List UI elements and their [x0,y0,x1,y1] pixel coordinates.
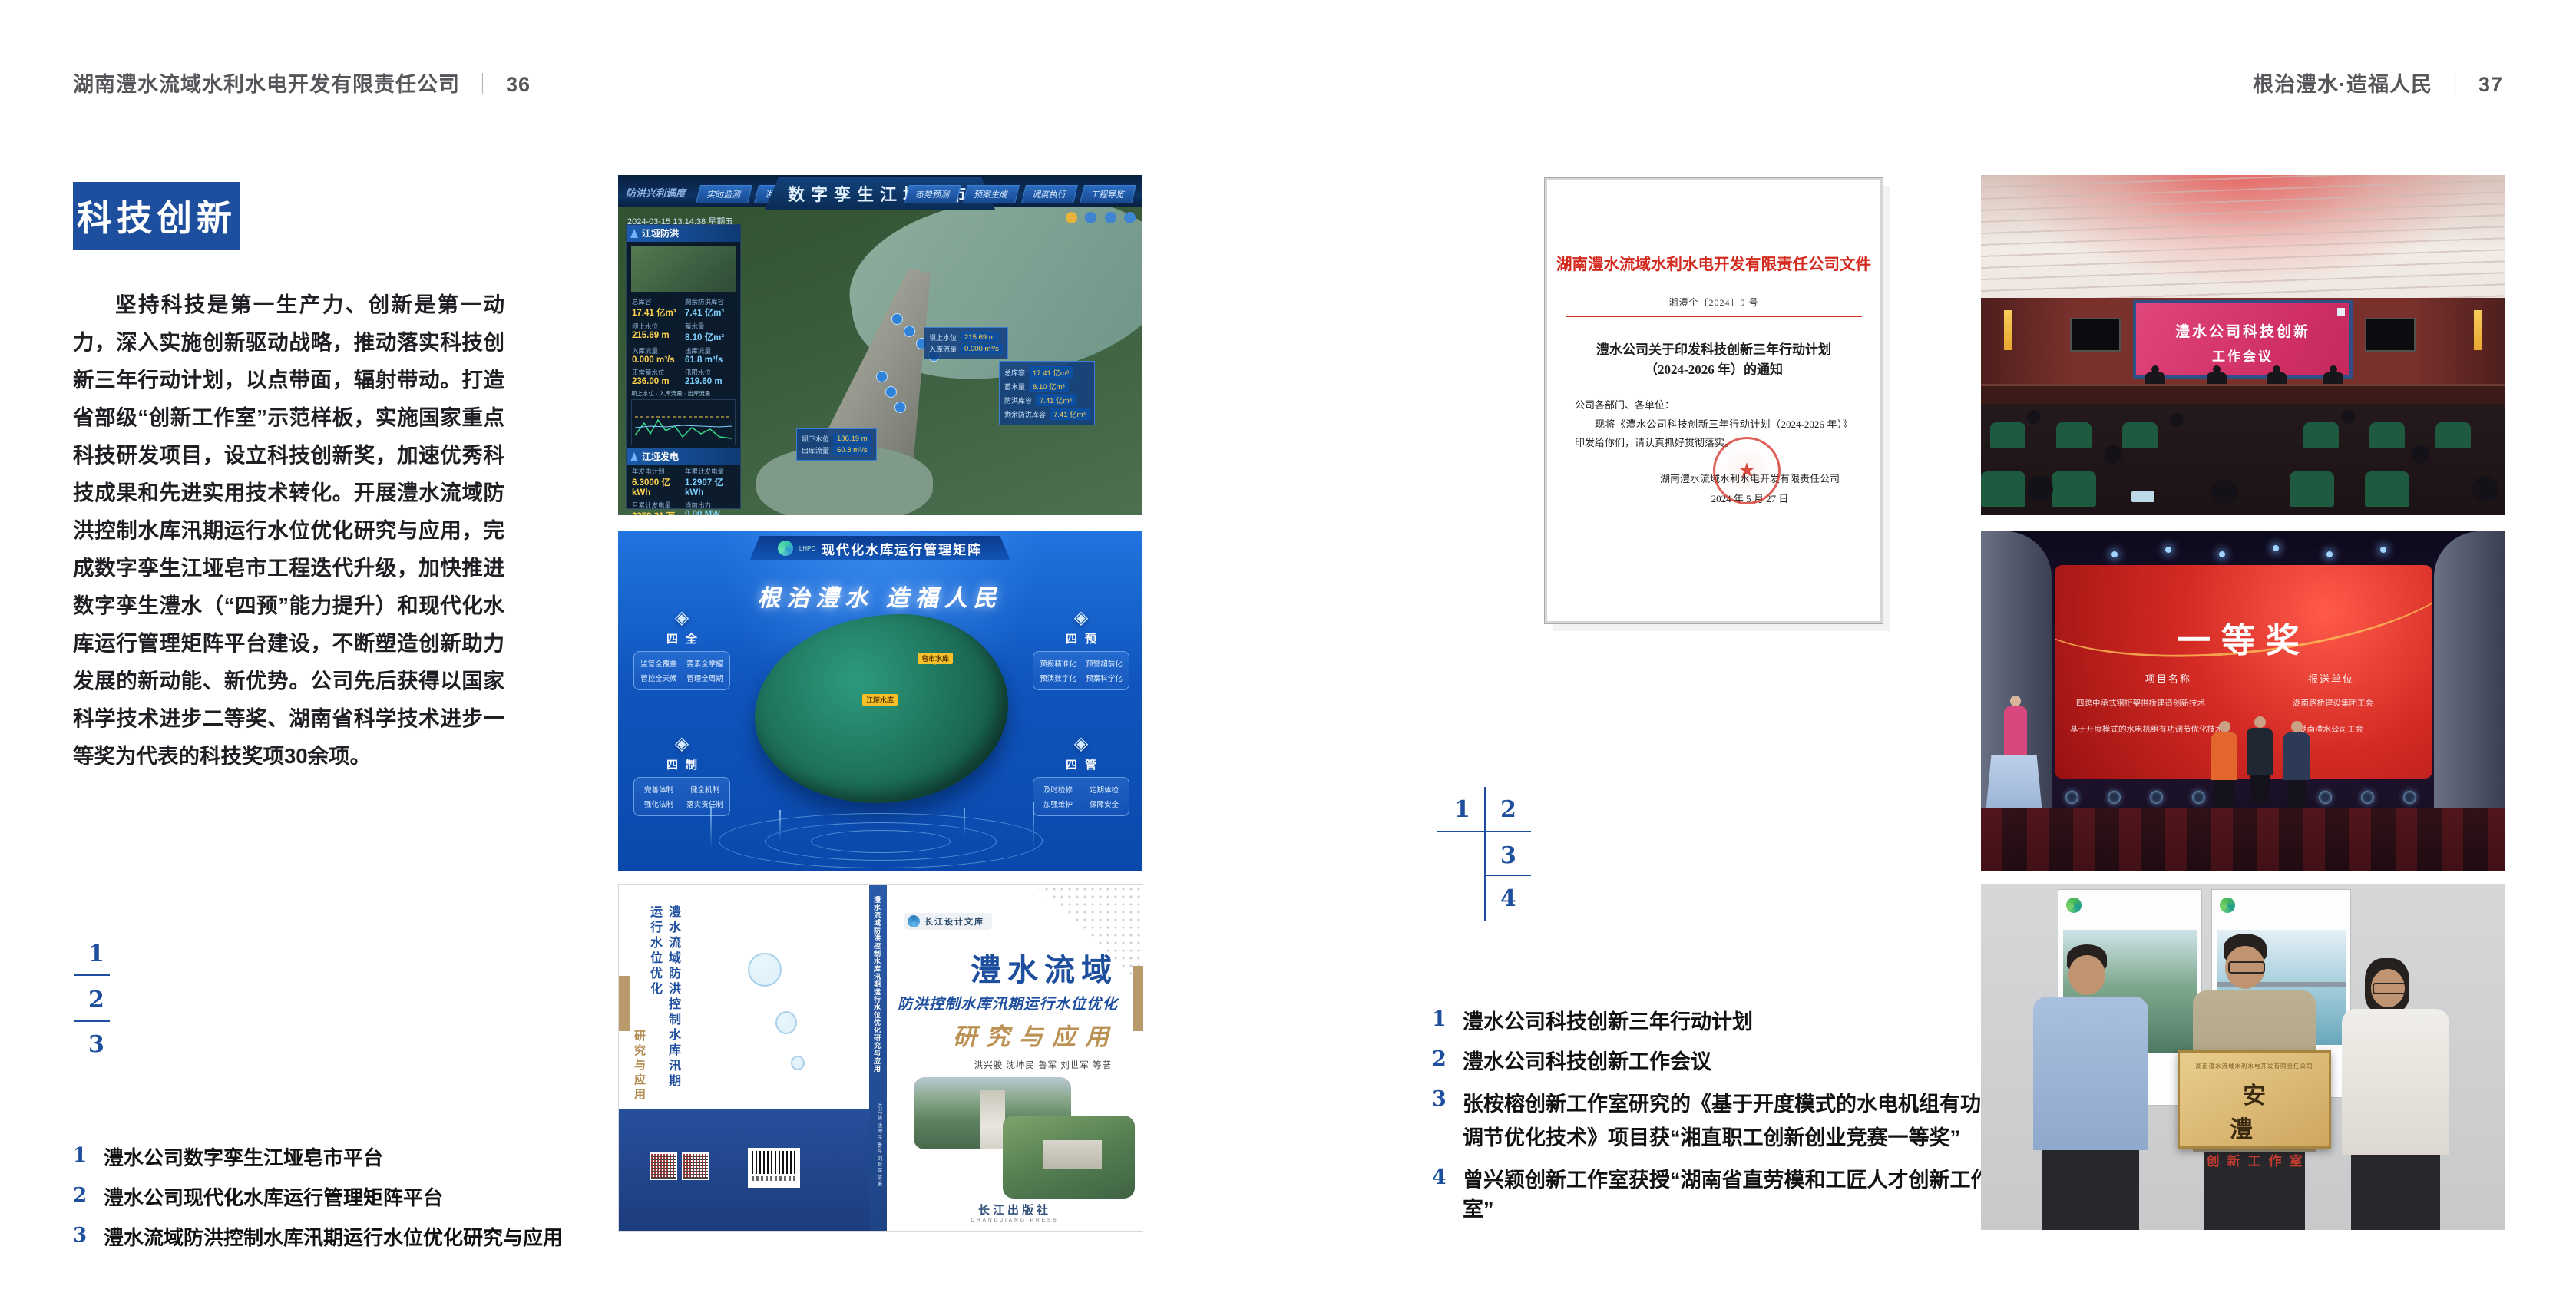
panel-items: 完善体制健全机制 强化法制落实责任制 [633,777,730,816]
glasses-icon [2228,961,2265,974]
light-pillar [710,806,712,848]
caption-row: 2 澧水公司现代化水库运行管理矩阵平台 [73,1184,580,1212]
wall-tv-screen [2365,318,2416,352]
left-header-separator: ｜ [472,73,494,96]
figure-index-2: 2 [88,987,104,1013]
dashboard-tabs-right: 态势预测 预案生成 调度执行 工程导览 [907,185,1134,203]
ripple-ring [811,830,951,853]
lhpc-logo-icon [778,541,793,556]
stage-light [2380,547,2386,553]
chair-back [2122,422,2158,448]
column-unit: 报送单位 [2308,671,2354,686]
section-title: 科技创新 [77,190,236,241]
user-icon [1066,212,1077,223]
figure-digital-twin-dashboard: 防洪兴利调度 实时监测 洪水预报 防洪预警 数字孪生江垭皂市 态势预测 预案生成… [618,175,1142,515]
stage-fixture [2192,791,2205,804]
caption-number: 2 [73,1184,104,1212]
left-page-number: 36 [506,73,531,96]
stat-cell: 坝上水位215.69 m [630,320,683,345]
tooltip-row: 坝上水位215.69 m [929,332,1003,342]
plaque-sub-text: 创新工作室 [2180,1150,2329,1169]
water-droplet [748,953,782,987]
official-seal: ★ [1713,437,1781,504]
page-spread: { "colors": {"accent_blue": "#1e4f9e", "… [0,0,2576,1306]
capacity-tooltip: 总库容17.41 亿m³ 蓄水量8.10 亿m³ 防洪库容7.41 亿m³ 剩余… [999,361,1095,425]
audience-head [2342,410,2356,424]
document-body: 现将《澧水公司科技创新三年行动计划（2024-2026 年）》印发给你们，请认真… [1575,415,1853,452]
caption-number: 1 [1432,1007,1463,1037]
panel-siquan: ◈ 四全 监管全覆盖要素全掌握 管控全天候管理全周期 [633,607,730,690]
qr-code [682,1152,709,1180]
index-divider [74,1020,110,1022]
caption-text: 澧水流域防洪控制水库汛期运行水位优化研究与应用 [104,1224,563,1251]
series-name: 长江设计文库 [924,915,984,927]
water-droplet [775,1011,797,1034]
chair-back [1990,422,2025,448]
seal-star-icon: ★ [1738,459,1755,482]
index-divider [1437,831,1531,832]
caption-row: 1 澧水公司科技创新三年行动计划 [1432,1007,2000,1037]
tab-plan-generation: 预案生成 [963,185,1020,203]
stage-light [2219,551,2225,557]
photo-studio-group: 湖南澧水流域水利水电开发有限责任公司 安 澧 创新工作室 [1981,884,2505,1230]
caption-number: 2 [1432,1047,1463,1076]
downstream-tooltip: 坝下水位186.19 m 出库流量60.8 m³/s [796,428,877,461]
audience-head [2472,476,2498,502]
document-salutation: 公司各部门、各单位： [1575,397,1675,412]
chair-back [2369,422,2405,448]
tab-realtime-monitoring: 实时监测 [696,185,752,203]
publisher-name: 长江出版社 [887,1202,1143,1218]
lhpc-logo-icon [2220,898,2235,913]
light-pillar [1033,802,1034,848]
winner-figure-navy [2283,732,2310,780]
audience-head [2104,445,2122,464]
photo-award-ceremony: 一等奖 项目名称 报送单位 四跨中承式钢桁架拱桥建造创新技术 湖南路桥建设集团工… [1981,531,2505,871]
left-header-company: 湖南澧水流域水利水电开发有限责任公司 [73,73,460,96]
layers-icon [1085,212,1096,223]
figure-index-4: 4 [1500,885,1516,912]
screen-content: 澧水公司科技创新 工作会议 [2136,303,2349,375]
dashboard-icon-row [1061,212,1136,227]
barcode [748,1148,800,1188]
stage-fixture [2361,791,2374,804]
right-page-header: 根治澧水·造福人民｜37 [2253,68,2503,98]
audience-head [2411,445,2429,464]
caption-number: 4 [1432,1165,1463,1224]
caption-row: 1 澧水公司数字孪生江垭皂市平台 [73,1144,580,1172]
stat-cell: 总库容17.41 亿m³ [630,296,683,320]
tooltip-row: 总库容17.41 亿m³ [1004,366,1090,379]
stage-light [2165,547,2171,553]
panel-siguan: ◈ 四管 及时检修定期体检 加强维护保障安全 [1033,732,1129,816]
tooltip-row: 坝下水位186.19 m [802,434,871,444]
stage-fixture [2065,791,2078,804]
cube-icon: ◈ [633,732,730,755]
stage-fixture [2150,791,2163,804]
award-row-unit: 湖南澧水公司工会 [2299,723,2363,735]
index-divider [1484,875,1531,876]
caption-number: 3 [73,1224,104,1251]
screen-title-line2: 工作会议 [2136,341,2349,365]
stat-cell: 蓄水量8.10 亿m³ [683,320,736,345]
spine-authors: 洪兴骏 沈坤民 鲁军 刘世军 等著 [875,1103,882,1187]
flood-panel: 江垭防洪 总库容17.41 亿m³ 剩余防洪库容7.41 亿m³ 坝上水位215… [626,224,741,509]
caption-text: 澧水公司数字孪生江垭皂市平台 [104,1144,383,1172]
back-cover-vertical-title: 澧水流域防洪控制水库汛期运行水位优化 [645,905,682,1099]
seated-person [2145,372,2165,384]
person-legs [2351,1155,2440,1230]
right-figure-index: 1 2 3 4 [1436,787,1543,925]
caption-number: 3 [1432,1087,1463,1155]
matrix-title: 现代化水库运行管理矩阵 [822,539,982,558]
photo-innovation-meeting: 澧水公司科技创新 工作会议 [1981,175,2505,515]
water-level-chart [631,399,736,445]
gate-marker-dot [885,386,897,398]
stat-cell: 当前出力0.00 MW [683,499,736,515]
stage-light [2326,551,2333,557]
figure-index-2: 2 [1500,796,1516,823]
tooltip-row: 防洪库容7.41 亿m³ [1004,394,1090,406]
publisher-name-en: CHANGJIANG PRESS [887,1218,1143,1223]
seated-person [2207,372,2227,384]
caption-row: 3 澧水流域防洪控制水库汛期运行水位优化研究与应用 [73,1224,580,1251]
wall-lamp [2004,310,2012,350]
chair-back [2290,471,2334,507]
caption-row: 4 曾兴颖创新工作室获授“湖南省直劳模和工匠人才创新工作室” [1432,1165,2000,1224]
tooltip-row: 出库流量60.8 m³/s [802,445,871,455]
panel-items: 监管全覆盖要素全掌握 管控全天候管理全周期 [633,651,730,690]
stat-cell: 正常蓄水位236.00 m [630,366,683,388]
figure-index-3: 3 [88,1031,104,1058]
figure-index-3: 3 [1500,842,1516,869]
person-head [2068,955,2105,995]
qr-code [650,1152,677,1180]
right-page-number: 37 [2478,73,2503,96]
light-pillar [779,810,781,841]
book-spine: 澧水流域防洪控制水库汛期运行水位优化研究与应用 洪兴骏 沈坤民 鲁军 刘世军 等… [869,885,887,1231]
caption-row: 3 张桉榕创新工作室研究的《基于开度模式的水电机组有功调节优化技术》项目获“湘直… [1432,1087,2000,1155]
gate-marker-dot [891,313,903,325]
stat-cell: 汛限水位219.60 m [683,366,736,388]
cover-dam-photo-2 [1003,1116,1135,1199]
upstream-tooltip: 坝上水位215.69 m 入库流量0.000 m³/s [924,327,1008,359]
gate-marker-dot [894,402,906,413]
audience-head [2027,410,2041,424]
panel-siyu: ◈ 四预 预报精准化预警超前化 预演数字化预案科学化 [1033,607,1129,690]
right-header-separator: ｜ [2445,73,2466,96]
award-row-project: 四跨中承式钢桁架拱桥建造创新技术 [2076,697,2205,709]
light-pillar [964,808,965,837]
audience-head [2170,413,2184,427]
gate-marker-dot [904,326,915,337]
tab-situation-forecast: 态势预测 [904,185,961,203]
seated-person [2267,372,2287,384]
body-paragraph: 坚持科技是第一生产力、创新是第一动力，深入实施创新驱动战略，推动落实科技创新三年… [73,286,504,775]
left-captions: 1 澧水公司数字孪生江垭皂市平台 2 澧水公司现代化水库运行管理矩阵平台 3 澧… [73,1144,580,1264]
winner-figure-orange [2211,732,2237,780]
caption-text: 张桉榕创新工作室研究的《基于开度模式的水电机组有功调节优化技术》项目获“湘直职工… [1463,1087,2000,1155]
document-number: 湘澧企〔2024〕9 号 [1547,296,1880,309]
chair-back [2056,422,2092,448]
book-title-tail: 研究与应用 [953,1017,1118,1052]
caption-text: 曾兴颖创新工作室获授“湖南省直劳模和工匠人才创新工作室” [1463,1165,2000,1224]
dashboard-corner-label: 防洪兴利调度 [626,185,686,200]
section-title-block: 科技创新 [73,182,240,250]
figure-index-1: 1 [88,941,104,967]
award-title: 一等奖 [2055,613,2432,662]
book-title-sub: 防洪控制水库汛期运行水位优化 [898,991,1118,1013]
stat-cell: 剩余防洪库容7.41 亿m³ [683,296,736,320]
power-stats: 年发电计划6.3000 亿kWh 年累计发电量1.2907 亿kWh 月累计发电… [627,465,740,515]
plaque-org-line: 湖南澧水流域水利水电开发有限责任公司 [2180,1062,2329,1070]
index-divider [74,974,110,976]
award-row-project: 基于开度模式的水电机组有功调节优化技术 [2070,723,2224,735]
chair-back [1981,471,2025,507]
publisher-block: 长江出版社 CHANGJIANG PRESS [887,1202,1143,1223]
column-project: 项目名称 [2145,671,2191,686]
press-logo-icon [908,915,920,927]
person-body-white-tee [2342,1009,2449,1155]
person-body-blue-polo [2033,997,2148,1150]
stage-light [2111,551,2118,557]
left-figure-index: 1 2 3 [74,941,121,1079]
plaque-main-text: 安 澧 [2180,1076,2329,1144]
seated-person [2323,372,2343,384]
panel-items: 及时检修定期体检 加强维护保障安全 [1033,777,1129,816]
dam-thumbnail [631,246,736,292]
figure-matrix-platform: LHPC 现代化水库运行管理矩阵 根治澧水 造福人民 皂市水库 江垭水库 ◈ 四… [618,531,1142,871]
led-screen: 一等奖 项目名称 报送单位 四跨中承式钢桁架拱桥建造创新技术 湖南路桥建设集团工… [2055,565,2432,779]
cube-icon: ◈ [1033,607,1129,629]
stage-light [2273,545,2279,551]
stat-cell: 月累计发电量3359.21 万kWh [630,499,683,515]
screen-title-line1: 澧水公司科技创新 [2136,303,2349,341]
figure-book-cover: 澧水流域防洪控制水库汛期运行水位优化 研究与应用 澧水流域防洪控制水库汛期运行水… [618,884,1143,1232]
left-page-header: 湖南澧水流域水利水电开发有限责任公司｜36 [73,68,531,98]
logo-abbr: LHPC [799,545,815,552]
meeting-ceiling [1981,175,2505,298]
cube-icon: ◈ [633,607,730,629]
stat-cell: 年累计发电量1.2907 亿kWh [683,465,736,499]
tooltip-row: 入库流量0.000 m³/s [929,344,1003,354]
caption-number: 1 [73,1144,104,1172]
panel-items: 预报精准化预警超前化 预演数字化预案科学化 [1033,651,1129,690]
person-legs [2042,1150,2139,1230]
back-cover-gold-tab [619,976,630,1031]
chair-back [2365,471,2409,507]
screen-logo-icon [2337,308,2345,316]
wall-lamp [2474,310,2482,350]
tab-project-tour: 工程导览 [1080,185,1136,203]
chart-legend: 坝上水位 · 入库流量 · 出库流量 [627,388,740,399]
glasses-icon [2373,983,2406,994]
document-org-line: 湖南澧水流域水利水电开发有限责任公司文件 [1547,251,1880,274]
audience-head [2027,476,2053,502]
index-divider-vertical [1484,787,1486,921]
spine-title: 澧水流域防洪控制水库汛期运行水位优化研究与应用 [872,896,882,1073]
cube-icon: ◈ [1033,732,1129,755]
right-header-slogan: 根治澧水·造福人民 [2253,73,2432,96]
back-cover-vertical-subtitle: 研究与应用 [631,1030,647,1103]
right-captions: 1 澧水公司科技创新三年行动计划 2 澧水公司科技创新工作会议 3 张桉榕创新工… [1432,1007,2000,1236]
official-document: 湖南澧水流域水利水电开发有限责任公司文件 湘澧企〔2024〕9 号 澧水公司关于… [1545,178,1883,623]
caption-text: 澧水公司科技创新工作会议 [1463,1047,1711,1076]
host-figure [2004,706,2027,762]
series-badge: 长江设计文库 [904,913,992,930]
rostrum-table [1981,384,2505,406]
chair-back [2435,422,2471,448]
chair-back [2052,471,2096,507]
settings-icon [1124,212,1136,223]
matrix-title-bar: LHPC 现代化水库运行管理矩阵 [749,536,1010,560]
front-cover-gold-tab [1133,966,1143,1031]
audience-head [2211,479,2237,505]
document-title-line2: （2024-2026 年）的通知 [1547,359,1880,378]
locate-icon [1105,212,1116,223]
projection-screen: 澧水公司科技创新 工作会议 [2133,300,2353,379]
flood-panel-title: 江垭防洪 [627,225,740,242]
book-title-main: 澧水流域 [971,945,1118,990]
chair-back [2303,422,2339,448]
tooltip-row: 蓄水量8.10 亿m³ [1004,380,1090,392]
gate-marker-dot [876,371,888,382]
water-droplet [791,1056,805,1070]
stat-cell: 年发电计划6.3000 亿kWh [630,465,683,499]
power-panel-title: 江垭发电 [627,448,740,465]
stat-cell: 出库流量61.8 m³/s [683,345,736,366]
tissue-box [2131,491,2154,502]
map-marker-jiangya: 江垭水库 [862,694,898,706]
document-red-rule [1566,316,1862,317]
award-row-unit: 湖南路桥建设集团工会 [2293,697,2373,709]
stat-cell: 入库流量0.000 m³/s [630,345,683,366]
flood-stats: 总库容17.41 亿m³ 剩余防洪库容7.41 亿m³ 坝上水位215.69 m… [627,296,740,388]
figure-index-1: 1 [1454,796,1470,823]
studio-plaque: 湖南澧水流域水利水电开发有限责任公司 安 澧 创新工作室 [2178,1050,2331,1149]
map-marker-zaoshi: 皂市水库 [918,653,953,664]
stage-fixture [2108,791,2121,804]
stage-fixture [2319,791,2332,804]
caption-row: 2 澧水公司科技创新工作会议 [1432,1047,2000,1076]
presenter-figure-suit [2247,728,2273,775]
stage-floor [1981,808,2505,871]
wall-tv-screen [2070,318,2121,352]
book-authors: 洪兴骏 沈坤民 鲁军 刘世军 等著 [974,1059,1112,1071]
stage-fixture [2403,791,2416,804]
lhpc-logo-icon [2066,898,2082,913]
panel-sizhi: ◈ 四制 完善体制健全机制 强化法制落实责任制 [633,732,730,816]
tooltip-row: 剩余防洪库容7.41 亿m³ [1004,408,1090,420]
caption-text: 澧水公司现代化水库运行管理矩阵平台 [104,1184,443,1212]
caption-text: 澧水公司科技创新三年行动计划 [1463,1007,1753,1037]
document-title-line1: 澧水公司关于印发科技创新三年行动计划 [1547,339,1880,358]
tab-dispatch-execution: 调度执行 [1021,185,1078,203]
